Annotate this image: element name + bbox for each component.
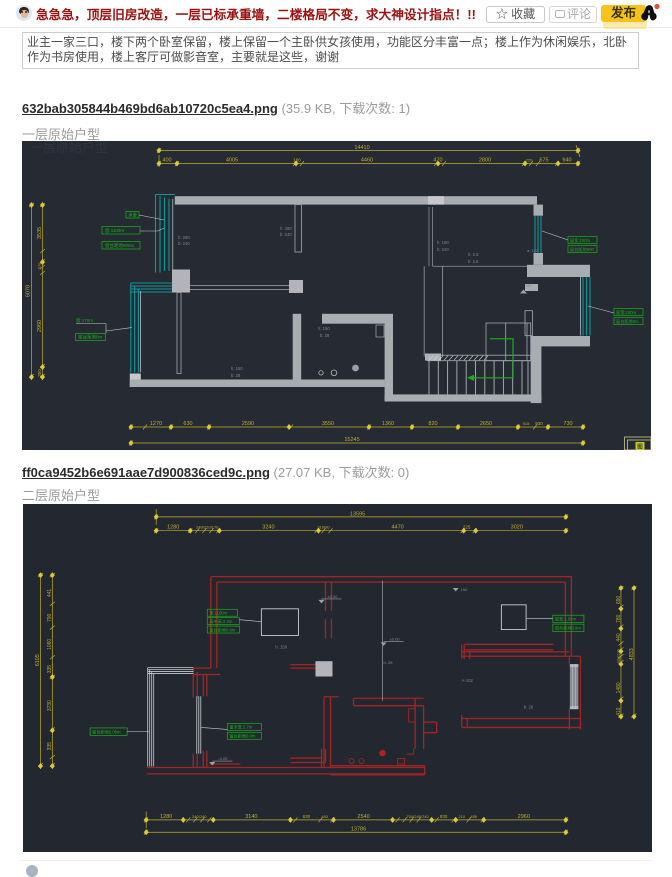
svg-text:h: 2.8: h: 2.8 (468, 252, 479, 257)
svg-text:3020: 3020 (511, 525, 523, 531)
svg-text:400: 400 (162, 158, 171, 164)
svg-text:b: 240: b: 240 (280, 232, 292, 237)
svg-text:441: 441 (47, 589, 53, 597)
svg-text:窗:1100m: 窗:1100m (105, 227, 124, 234)
svg-text:630: 630 (183, 421, 192, 427)
svg-text:335: 335 (47, 665, 53, 673)
svg-text:690: 690 (616, 596, 622, 604)
svg-text:b: 2.6: b: 2.6 (468, 259, 479, 264)
svg-text:930: 930 (535, 421, 543, 426)
svg-text:2960: 2960 (37, 320, 43, 332)
svg-text:h: 150: h: 150 (231, 366, 243, 371)
svg-text:h: 150: h: 150 (275, 644, 287, 649)
svg-text:15245: 15245 (344, 437, 359, 443)
svg-text:2960: 2960 (518, 814, 530, 820)
svg-text:b: 28: b: 28 (524, 705, 534, 710)
svg-text:1270: 1270 (150, 421, 162, 427)
svg-text:-0.05: -0.05 (218, 756, 228, 761)
svg-text:3240: 3240 (262, 525, 274, 531)
svg-text:一层原始户型: 一层原始户型 (30, 141, 108, 155)
svg-text:3140: 3140 (245, 814, 257, 820)
svg-text:2540: 2540 (357, 814, 369, 820)
svg-text:1060: 1060 (47, 639, 53, 650)
svg-text:150: 150 (461, 587, 468, 592)
svg-text:630: 630 (303, 814, 311, 819)
svg-text:A-102: A-102 (462, 678, 474, 683)
svg-text:2650: 2650 (480, 421, 492, 427)
svg-text:13595: 13595 (350, 511, 365, 517)
svg-text:h: 280: h: 280 (280, 226, 292, 231)
svg-text:240/240: 240/240 (192, 814, 207, 819)
svg-text:455: 455 (470, 814, 477, 819)
svg-text:高中高:2.2m: 高中高:2.2m (209, 618, 233, 624)
svg-text:700/240/740: 700/240/740 (407, 814, 430, 819)
svg-text:220: 220 (526, 158, 533, 163)
svg-text:14410: 14410 (354, 145, 369, 151)
svg-text:h: 150: h: 150 (318, 326, 330, 331)
svg-text:790: 790 (47, 613, 53, 621)
svg-text:180: 180 (293, 158, 301, 163)
svg-text:3730: 3730 (47, 700, 53, 711)
svg-text:4005: 4005 (226, 158, 238, 164)
svg-text:窗台距地0.9m: 窗台距地0.9m (555, 625, 582, 631)
svg-text:承重: 承重 (128, 212, 137, 218)
svg-text:940: 940 (562, 158, 571, 164)
svg-text:1280: 1280 (160, 814, 172, 820)
svg-text:2590: 2590 (242, 421, 254, 427)
svg-text:675: 675 (539, 158, 548, 164)
svg-text:780: 780 (616, 614, 622, 622)
svg-text:1360: 1360 (382, 421, 394, 427)
svg-text:h: 150: h: 150 (437, 240, 449, 245)
svg-text:6105: 6105 (35, 654, 41, 666)
svg-text:图: 图 (637, 443, 643, 451)
svg-text:窗:170m: 窗:170m (76, 317, 93, 324)
svg-text:窗宽:100m: 窗宽:100m (570, 237, 591, 244)
svg-text:820: 820 (428, 421, 437, 427)
svg-text:窗台距地900m: 窗台距地900m (105, 242, 135, 249)
svg-text:窗台距地0m: 窗台距地0m (616, 318, 639, 325)
svg-text:a: 102: a: 102 (527, 248, 539, 253)
svg-text:730: 730 (563, 421, 572, 427)
svg-text:窗宽:100m: 窗宽:100m (616, 309, 637, 316)
svg-text:13786: 13786 (351, 827, 366, 833)
svg-text:3535: 3535 (37, 227, 43, 239)
svg-text:窗宽:1.56m: 窗宽:1.56m (555, 616, 577, 622)
svg-text:915: 915 (523, 421, 530, 426)
svg-text:窗台距地0.05m: 窗台距地0.05m (92, 728, 121, 734)
svg-text:h: 280: h: 280 (178, 235, 190, 240)
svg-text:宽:1100m: 宽:1100m (209, 610, 227, 616)
svg-text:窗台距地0.9m: 窗台距地0.9m (209, 626, 236, 632)
svg-text:h: 28: h: 28 (384, 660, 394, 665)
svg-text:b: 28: b: 28 (320, 333, 330, 338)
svg-text:窗全宽:2.7m: 窗全宽:2.7m (229, 724, 253, 730)
svg-text:3550: 3550 (322, 421, 334, 427)
svg-text:窗台距地0m: 窗台距地0m (78, 334, 103, 341)
svg-text:150: 150 (525, 283, 532, 288)
svg-text:4470: 4470 (391, 525, 403, 531)
svg-text:b: 240: b: 240 (437, 247, 449, 252)
svg-text:2800: 2800 (479, 158, 491, 164)
svg-text:±0.00: ±0.00 (390, 636, 401, 641)
svg-text:6070: 6070 (26, 285, 32, 297)
svg-text:4833: 4833 (629, 648, 635, 660)
svg-text:窗台距地900: 窗台距地900 (570, 246, 594, 253)
svg-text:335: 335 (47, 742, 53, 750)
svg-text:1280: 1280 (167, 525, 179, 531)
svg-text:830: 830 (440, 814, 448, 819)
svg-text:1480: 1480 (616, 682, 622, 693)
svg-text:240/220/170: 240/220/170 (196, 525, 219, 530)
svg-text:4460: 4460 (361, 158, 373, 164)
svg-text:440: 440 (616, 633, 622, 641)
svg-text:b: 240: b: 240 (178, 241, 190, 246)
svg-text:210: 210 (458, 814, 465, 819)
svg-text:b: 28: b: 28 (231, 373, 241, 378)
svg-text:±0.00: ±0.00 (327, 594, 338, 599)
svg-text:180: 180 (321, 814, 328, 819)
svg-text:窗台距地0.0m: 窗台距地0.0m (229, 733, 256, 739)
